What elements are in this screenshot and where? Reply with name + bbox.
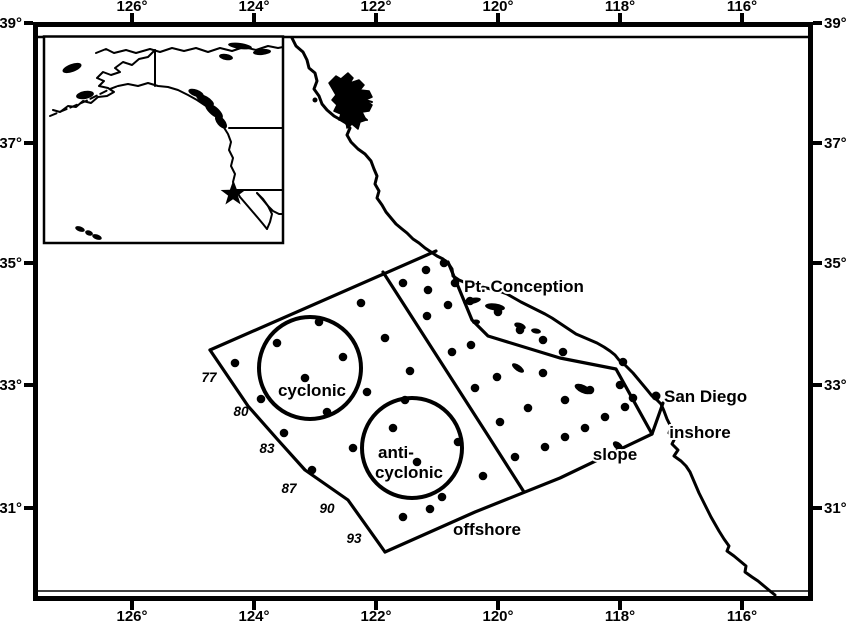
station-dot: [401, 396, 410, 405]
station-dot: [423, 312, 432, 321]
station-dot: [511, 453, 520, 462]
lat-label-left: 37°: [0, 135, 22, 152]
lon-label-bottom: 116°: [727, 608, 757, 625]
lat-label-right: 39°: [824, 15, 847, 32]
lat-tick-left: [24, 261, 33, 265]
station-dot: [467, 341, 476, 350]
station-dot: [424, 286, 433, 295]
lat-tick-right: [813, 261, 822, 265]
lon-label-top: 124°: [238, 0, 269, 15]
station-dot: [496, 418, 505, 427]
lat-label-left: 33°: [0, 377, 22, 394]
station-dot: [561, 433, 570, 442]
station-dot: [601, 413, 610, 422]
calcofi-line-number-77: 77: [201, 370, 218, 385]
san-diego-label: San Diego: [664, 387, 747, 406]
station-dot: [349, 444, 358, 453]
farallon-island: [313, 98, 318, 103]
station-dot: [339, 353, 348, 362]
station-dot: [438, 493, 447, 502]
station-dot: [471, 384, 480, 393]
station-dot: [621, 403, 630, 412]
station-dot: [357, 299, 366, 308]
station-dot: [539, 369, 548, 378]
station-dot: [581, 424, 590, 433]
station-dot: [616, 381, 625, 390]
station-dot: [399, 279, 408, 288]
station-dot: [231, 359, 240, 368]
lat-tick-right: [813, 21, 822, 25]
lat-tick-left: [24, 383, 33, 387]
lon-label-top: 122°: [360, 0, 391, 15]
station-dot: [257, 395, 266, 404]
station-dot: [389, 424, 398, 433]
calcofi-line-number-93: 93: [346, 531, 362, 546]
lon-label-bottom: 124°: [238, 608, 269, 625]
anticyclonic-eddy-label-line2: cyclonic: [375, 463, 443, 482]
station-dot: [399, 513, 408, 522]
station-dot: [466, 297, 475, 306]
anticyclonic-eddy-label-line1: anti-: [378, 443, 414, 462]
lat-label-right: 31°: [824, 500, 847, 517]
lat-label-right: 33°: [824, 377, 847, 394]
lat-tick-left: [24, 141, 33, 145]
station-dot: [561, 396, 570, 405]
station-dot: [516, 326, 525, 335]
station-dot: [406, 367, 415, 376]
station-dot: [539, 336, 548, 345]
calcofi-line-number-83: 83: [259, 441, 275, 456]
san-diego-marker: [652, 392, 661, 401]
calcofi-line-number-80: 80: [233, 404, 249, 419]
station-dot: [315, 318, 324, 327]
lat-label-left: 39°: [0, 15, 22, 32]
lon-label-bottom: 120°: [482, 608, 513, 625]
lat-label-right: 37°: [824, 135, 847, 152]
station-dot: [524, 404, 533, 413]
calcofi-line-number-90: 90: [319, 501, 335, 516]
lon-label-bottom: 126°: [116, 608, 147, 625]
lat-tick-right: [813, 383, 822, 387]
station-dot: [444, 301, 453, 310]
lon-label-top: 120°: [482, 0, 513, 15]
lat-tick-left: [24, 506, 33, 510]
lat-label-left: 35°: [0, 255, 22, 272]
station-dot: [426, 505, 435, 514]
station-dot: [323, 408, 332, 417]
station-dot: [454, 438, 463, 447]
inset-map: [44, 37, 283, 244]
lon-label-top: 116°: [727, 0, 757, 15]
lat-tick-right: [813, 141, 822, 145]
inshore-region-label: inshore: [669, 423, 730, 442]
pt-conception-label: Pt. Conception: [464, 277, 584, 296]
calcofi-survey-map: 126°126°124°124°122°122°120°120°118°118°…: [0, 0, 850, 626]
station-dot: [619, 358, 628, 367]
lon-label-top: 126°: [116, 0, 147, 15]
station-dot: [308, 466, 317, 475]
lat-tick-right: [813, 506, 822, 510]
station-dot: [629, 394, 638, 403]
cyclonic-eddy-label: cyclonic: [278, 381, 346, 400]
station-dot: [448, 348, 457, 357]
station-dot: [273, 339, 282, 348]
station-dot: [559, 348, 568, 357]
station-dot: [541, 443, 550, 452]
station-dot: [586, 386, 595, 395]
slope-region-label: slope: [593, 445, 637, 464]
station-dot: [440, 259, 449, 268]
lon-label-bottom: 118°: [605, 608, 635, 625]
station-dot: [451, 279, 460, 288]
station-dot: [479, 472, 488, 481]
station-dot: [494, 308, 503, 317]
lon-label-bottom: 122°: [360, 608, 391, 625]
station-dot: [493, 373, 502, 382]
offshore-region-label: offshore: [453, 520, 521, 539]
station-dot: [280, 429, 289, 438]
lat-label-left: 31°: [0, 500, 22, 517]
lat-label-right: 35°: [824, 255, 847, 272]
station-dot: [422, 266, 431, 275]
lon-label-top: 118°: [605, 0, 635, 15]
lat-tick-left: [24, 21, 33, 25]
station-dot: [381, 334, 390, 343]
station-dot: [363, 388, 372, 397]
calcofi-line-number-87: 87: [281, 481, 298, 496]
